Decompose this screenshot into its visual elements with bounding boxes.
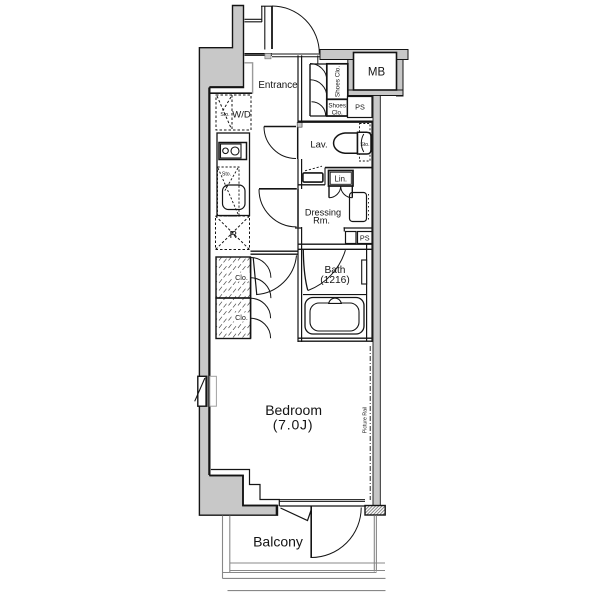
svg-text:Balcony: Balcony [253,534,303,550]
svg-text:Picture Rail: Picture Rail [363,407,369,434]
svg-text:Entrance: Entrance [258,80,298,91]
svg-text:(1216): (1216) [320,275,349,286]
svg-text:Clo.: Clo. [332,110,343,117]
svg-text:Sto.: Sto. [222,172,231,178]
svg-text:Clo.: Clo. [235,313,248,322]
svg-text:Sto.: Sto. [220,112,229,118]
svg-text:(7.0J): (7.0J) [273,416,314,432]
svg-text:PS: PS [360,233,370,242]
svg-text:Shoes: Shoes [328,103,346,110]
svg-text:PS: PS [355,103,365,112]
svg-text:Shoes Clo.: Shoes Clo. [334,66,341,97]
svg-text:R: R [230,229,238,241]
svg-text:MB: MB [368,67,386,79]
svg-text:Clo.: Clo. [235,273,248,282]
svg-text:Sto.: Sto. [360,142,369,148]
svg-text:Rm.: Rm. [313,216,330,226]
svg-text:Lav.: Lav. [310,140,327,151]
svg-text:W/D: W/D [232,109,251,120]
svg-text:Lin.: Lin. [335,174,348,183]
